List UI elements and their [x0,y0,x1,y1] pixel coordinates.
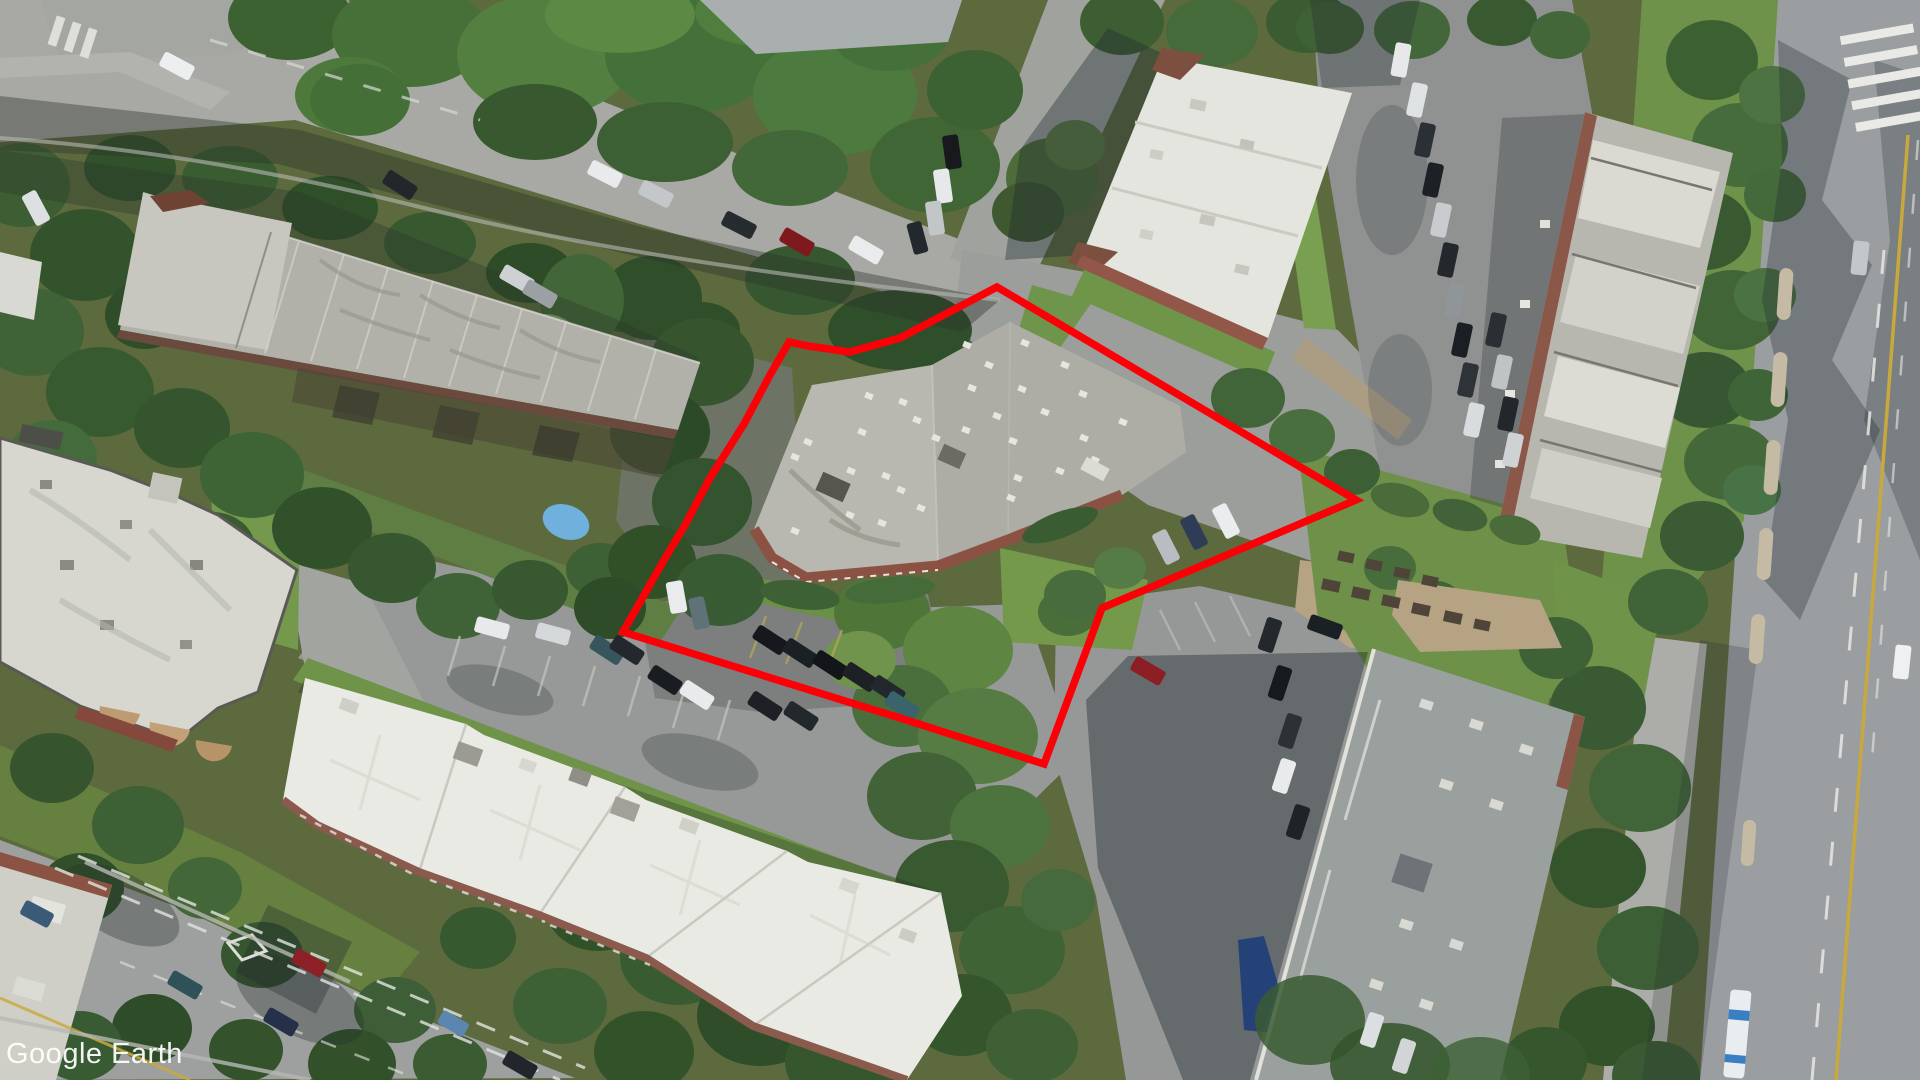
svg-text:Google Earth: Google Earth [6,1038,183,1070]
